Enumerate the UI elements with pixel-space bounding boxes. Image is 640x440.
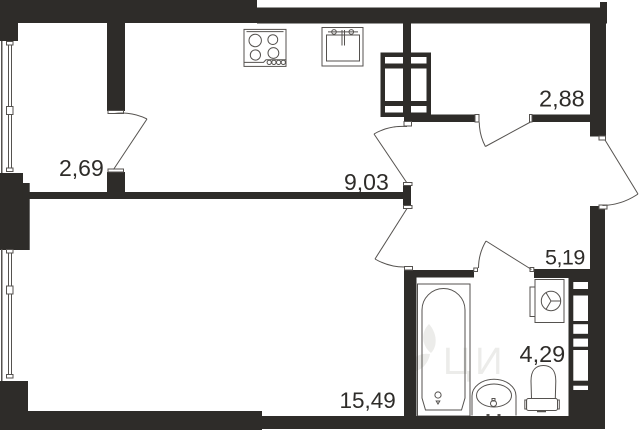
svg-text:ЦИ: ЦИ <box>443 341 506 383</box>
svg-text:5,19: 5,19 <box>545 246 585 270</box>
svg-text:2,69: 2,69 <box>59 155 104 181</box>
svg-text:2,88: 2,88 <box>539 86 585 112</box>
svg-text:4,29: 4,29 <box>520 341 566 367</box>
svg-text:15,49: 15,49 <box>340 388 396 413</box>
svg-text:9,03: 9,03 <box>344 169 389 195</box>
